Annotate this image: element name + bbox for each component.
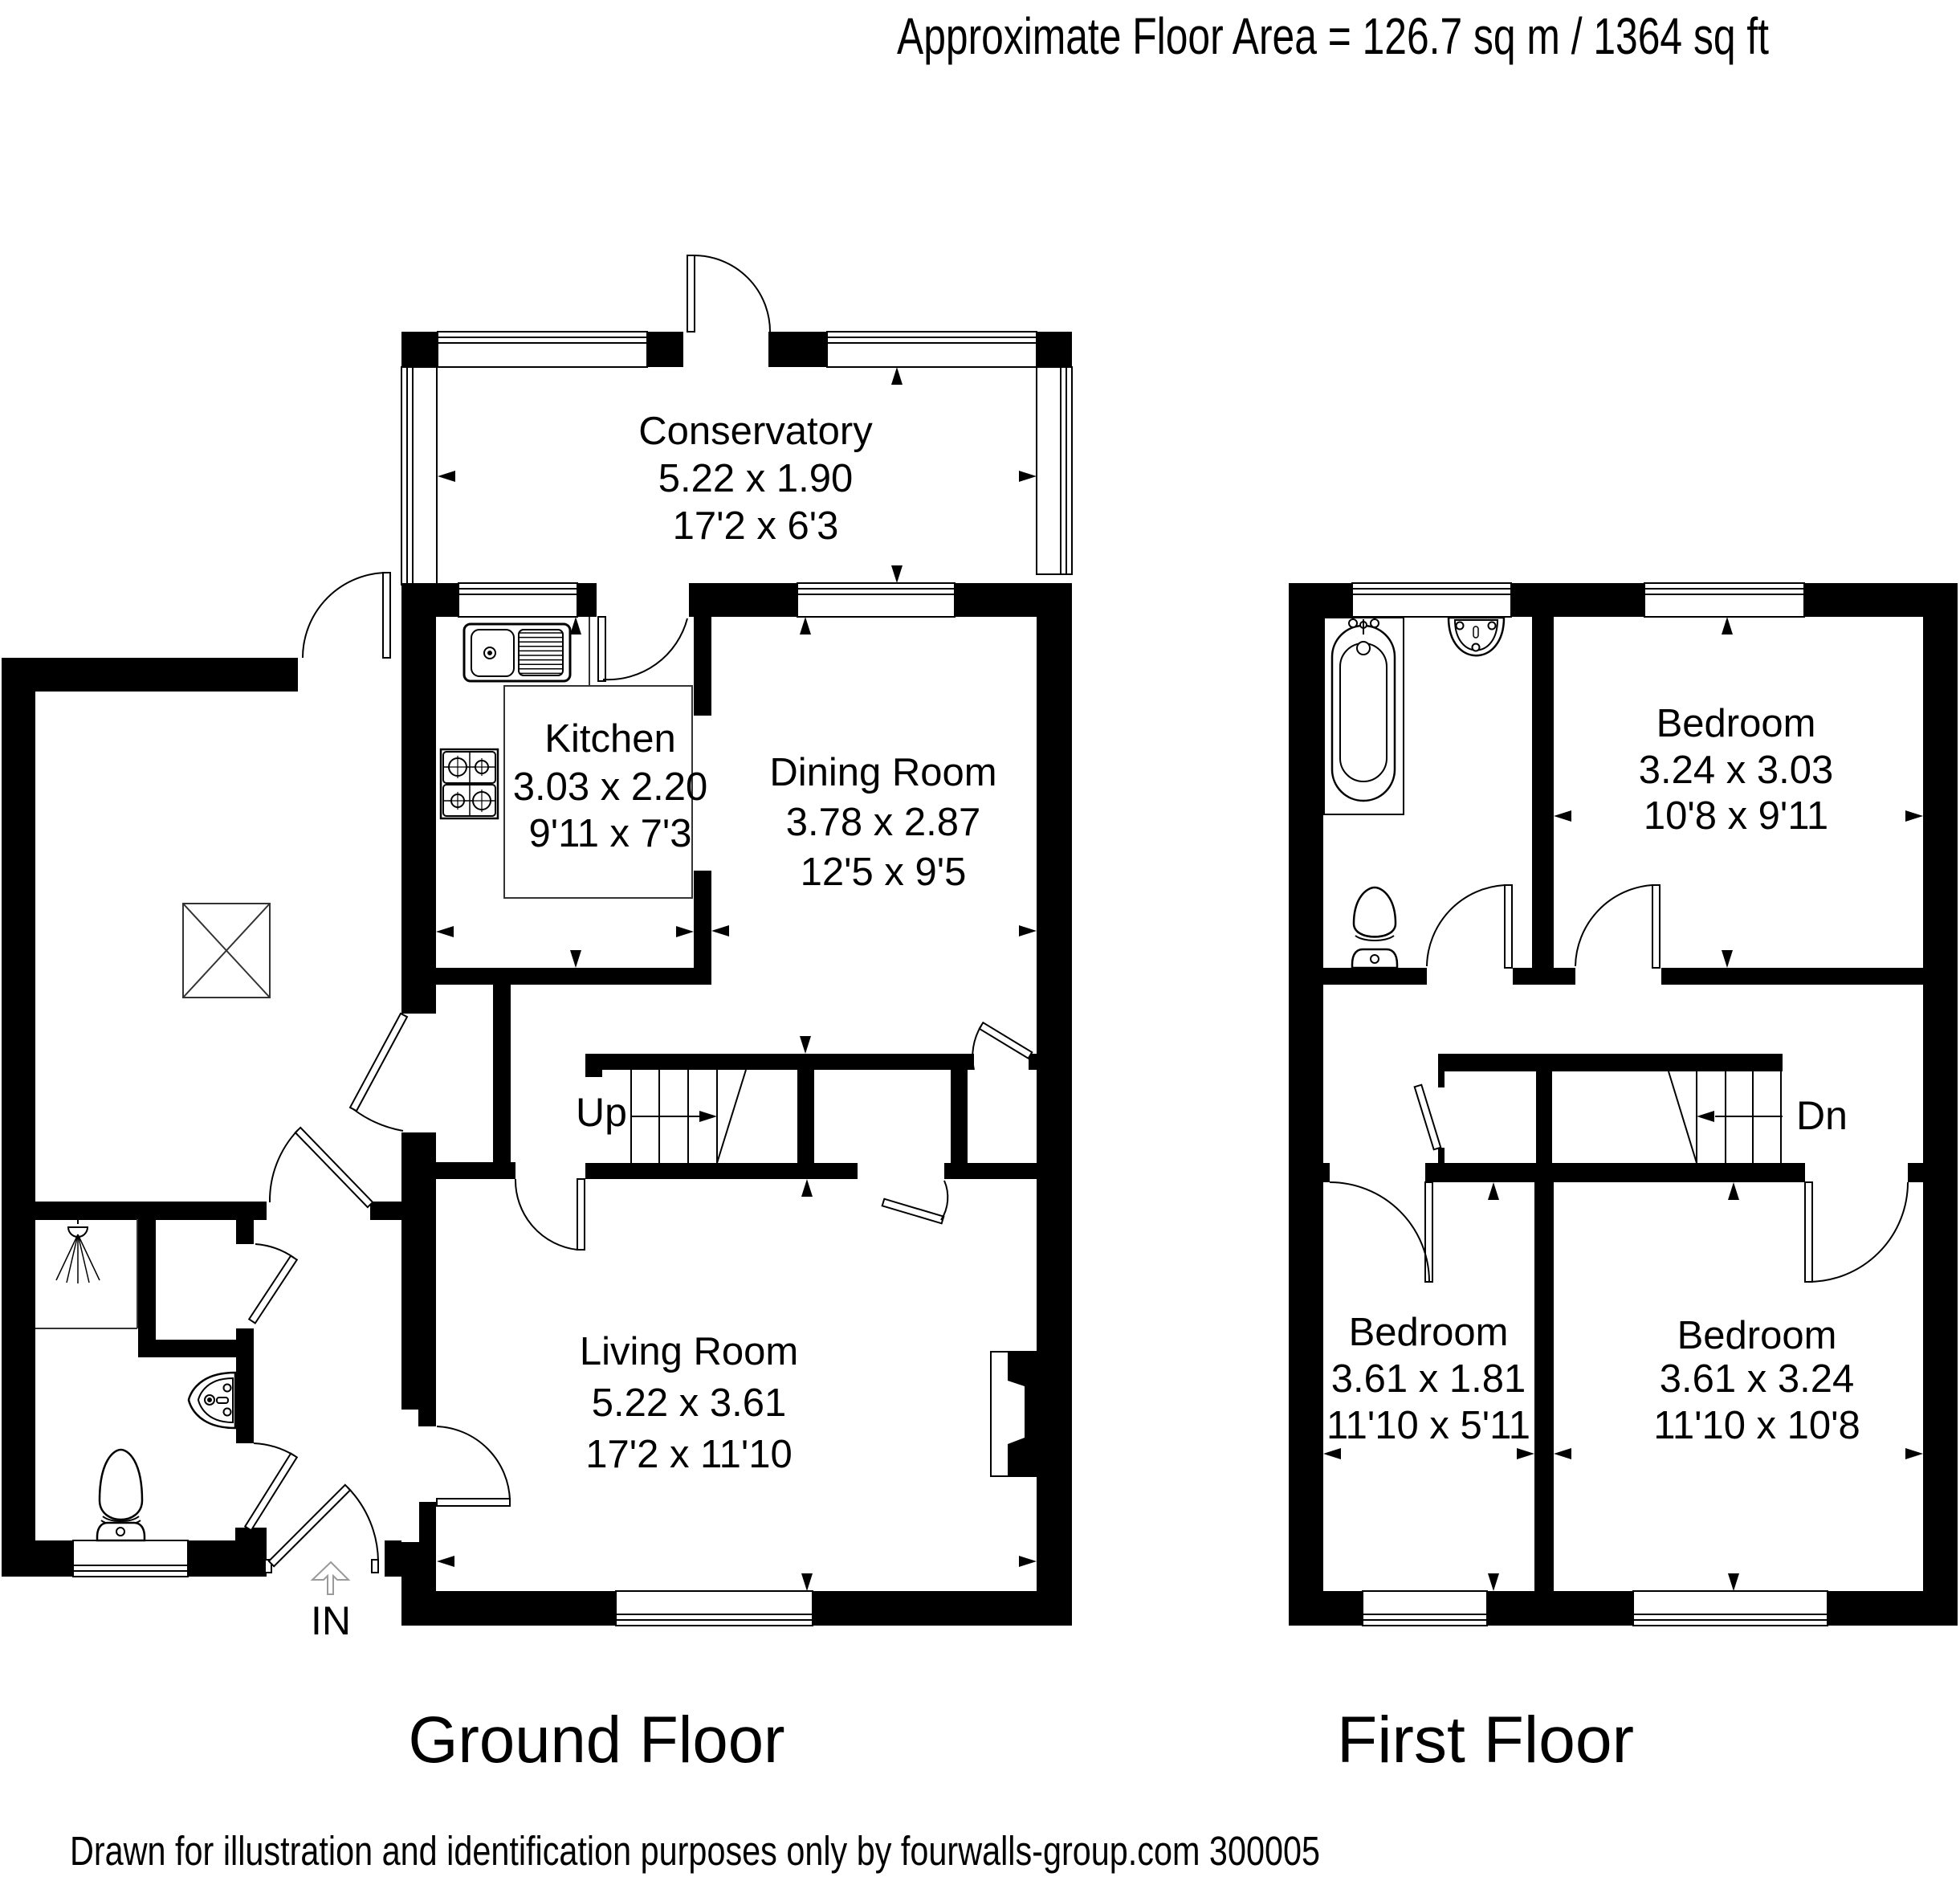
svg-text:Ground Floor: Ground Floor xyxy=(409,1704,785,1777)
svg-text:5.22 x 3.61: 5.22 x 3.61 xyxy=(592,1381,786,1425)
svg-text:11'10 x 10'8: 11'10 x 10'8 xyxy=(1653,1404,1860,1447)
svg-text:17'2 x 6'3: 17'2 x 6'3 xyxy=(673,504,839,548)
svg-text:Dining Room: Dining Room xyxy=(769,751,996,794)
svg-text:Kitchen: Kitchen xyxy=(544,717,675,761)
svg-text:Living Room: Living Room xyxy=(580,1330,798,1373)
svg-text:17'2 x 11'10: 17'2 x 11'10 xyxy=(585,1433,793,1476)
svg-text:Drawn for illustration and ide: Drawn for illustration and identificatio… xyxy=(70,1828,1320,1874)
svg-text:9'11 x 7'3: 9'11 x 7'3 xyxy=(528,812,691,855)
svg-text:3.78 x 2.87: 3.78 x 2.87 xyxy=(786,801,980,844)
svg-text:11'10 x 5'11: 11'10 x 5'11 xyxy=(1326,1404,1530,1447)
svg-text:Dn: Dn xyxy=(1796,1093,1848,1138)
svg-text:Bedroom: Bedroom xyxy=(1677,1314,1837,1357)
svg-text:IN: IN xyxy=(311,1598,351,1643)
svg-text:First Floor: First Floor xyxy=(1337,1704,1634,1777)
svg-text:Conservatory: Conservatory xyxy=(638,410,873,453)
svg-text:3.61 x 1.81: 3.61 x 1.81 xyxy=(1331,1357,1526,1401)
svg-text:3.03 x 2.20: 3.03 x 2.20 xyxy=(513,765,707,809)
svg-text:Up: Up xyxy=(576,1090,627,1135)
svg-text:12'5 x 9'5: 12'5 x 9'5 xyxy=(801,851,967,894)
svg-text:Bedroom: Bedroom xyxy=(1656,702,1816,745)
svg-text:Bedroom: Bedroom xyxy=(1349,1311,1509,1354)
svg-text:3.61 x 3.24: 3.61 x 3.24 xyxy=(1660,1357,1854,1401)
svg-text:10'8 x 9'11: 10'8 x 9'11 xyxy=(1644,794,1828,838)
svg-text:5.22 x 1.90: 5.22 x 1.90 xyxy=(658,457,853,500)
svg-text:Approximate Floor Area = 126.7: Approximate Floor Area = 126.7 sq m / 13… xyxy=(897,7,1769,65)
svg-text:3.24 x 3.03: 3.24 x 3.03 xyxy=(1639,749,1833,792)
